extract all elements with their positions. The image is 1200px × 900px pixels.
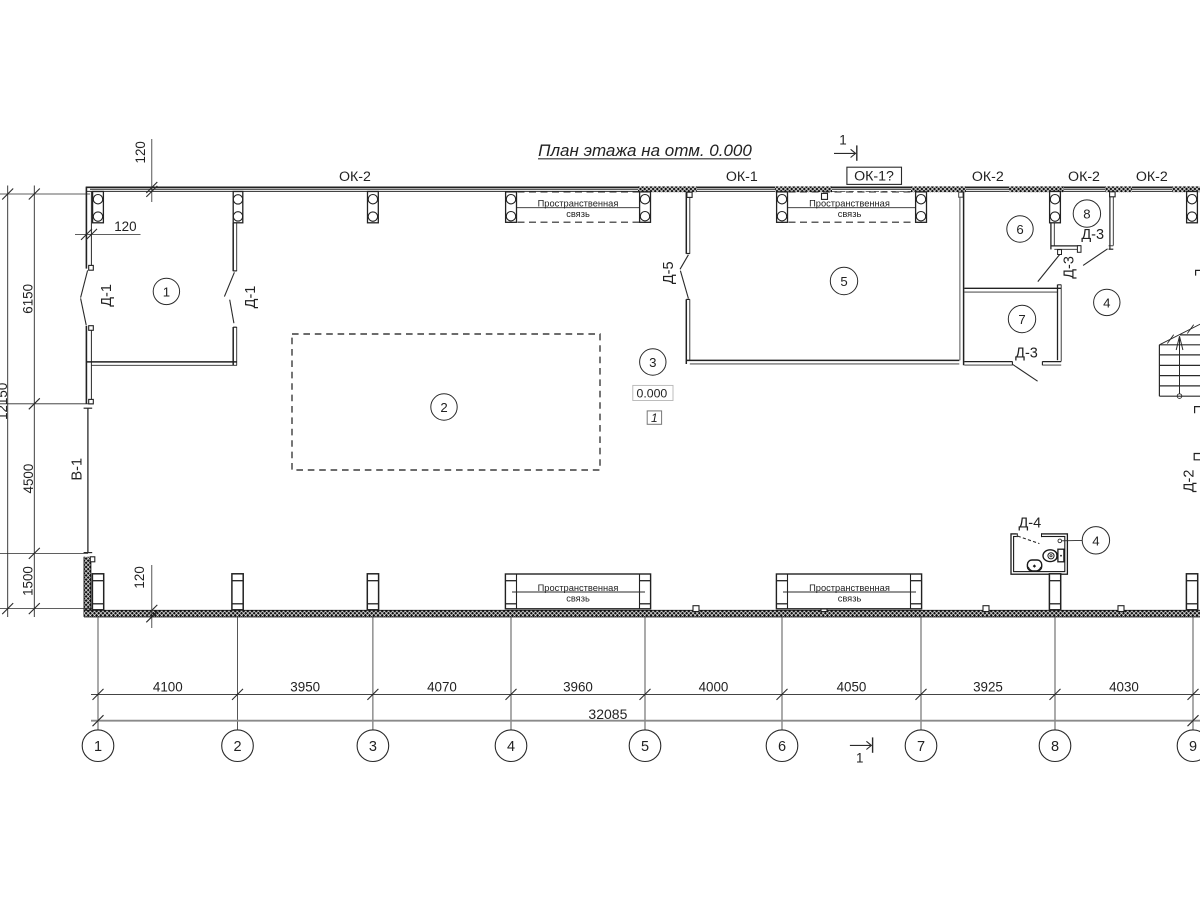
svg-text:Д-1: Д-1 <box>243 286 259 309</box>
svg-text:120: 120 <box>114 219 136 234</box>
svg-text:Д-3: Д-3 <box>1081 227 1104 243</box>
svg-text:1: 1 <box>94 739 102 755</box>
svg-text:Д-2: Д-2 <box>1182 470 1198 493</box>
svg-text:4: 4 <box>507 739 515 755</box>
svg-text:3: 3 <box>649 355 656 370</box>
svg-text:Пространственная: Пространственная <box>538 199 619 209</box>
svg-text:6: 6 <box>778 739 786 755</box>
svg-text:4050: 4050 <box>837 679 867 694</box>
svg-text:связь: связь <box>566 209 590 219</box>
svg-text:ОК-1: ОК-1 <box>726 169 758 185</box>
svg-text:ОК-2: ОК-2 <box>339 169 371 185</box>
svg-text:6: 6 <box>1016 222 1023 237</box>
svg-text:4030: 4030 <box>1109 679 1139 694</box>
svg-text:Д-3: Д-3 <box>1015 346 1038 362</box>
svg-text:120: 120 <box>132 566 147 588</box>
svg-text:связь: связь <box>566 593 590 603</box>
svg-text:4: 4 <box>1092 533 1099 548</box>
svg-text:5: 5 <box>840 274 847 289</box>
svg-text:Пространственная: Пространственная <box>538 583 619 593</box>
svg-text:связь: связь <box>838 209 862 219</box>
svg-text:1: 1 <box>163 284 170 299</box>
svg-text:4100: 4100 <box>153 679 183 694</box>
svg-text:4500: 4500 <box>21 464 36 494</box>
svg-text:8: 8 <box>1083 207 1090 222</box>
svg-text:4000: 4000 <box>699 679 729 694</box>
svg-text:Д-1: Д-1 <box>99 284 115 307</box>
svg-text:ОК-2: ОК-2 <box>972 169 1004 185</box>
svg-text:В-1: В-1 <box>70 458 86 481</box>
svg-text:Пространственная: Пространственная <box>809 583 890 593</box>
svg-text:32085: 32085 <box>588 706 627 722</box>
svg-text:ОК-1?: ОК-1? <box>854 169 894 185</box>
svg-text:2: 2 <box>233 739 241 755</box>
svg-text:4: 4 <box>1103 295 1110 310</box>
svg-text:120: 120 <box>133 141 148 163</box>
svg-text:1: 1 <box>651 411 658 425</box>
svg-text:5: 5 <box>641 739 649 755</box>
svg-text:Д-3: Д-3 <box>1061 256 1077 279</box>
svg-text:3960: 3960 <box>563 679 593 694</box>
svg-text:3950: 3950 <box>290 679 320 694</box>
svg-text:План этажа на отм. 0.000: План этажа на отм. 0.000 <box>538 141 752 160</box>
svg-text:Д-5: Д-5 <box>661 261 677 284</box>
svg-text:1: 1 <box>856 750 863 765</box>
svg-text:Пространственная: Пространственная <box>809 199 890 209</box>
svg-text:ОК-2: ОК-2 <box>1136 169 1168 185</box>
svg-text:8: 8 <box>1051 739 1059 755</box>
svg-text:ОК-2: ОК-2 <box>1068 169 1100 185</box>
svg-text:4070: 4070 <box>427 679 457 694</box>
svg-text:0.000: 0.000 <box>637 386 668 400</box>
svg-text:3925: 3925 <box>973 679 1003 694</box>
svg-text:Д-4: Д-4 <box>1018 516 1041 532</box>
svg-text:7: 7 <box>917 739 925 755</box>
svg-text:7: 7 <box>1018 312 1025 327</box>
svg-text:6150: 6150 <box>21 284 36 314</box>
svg-text:связь: связь <box>838 593 862 603</box>
svg-text:12150: 12150 <box>0 383 10 420</box>
svg-text:1500: 1500 <box>21 566 36 596</box>
svg-text:2: 2 <box>440 400 447 415</box>
svg-text:3: 3 <box>369 739 377 755</box>
svg-text:1: 1 <box>839 133 846 148</box>
svg-text:9: 9 <box>1189 739 1197 755</box>
